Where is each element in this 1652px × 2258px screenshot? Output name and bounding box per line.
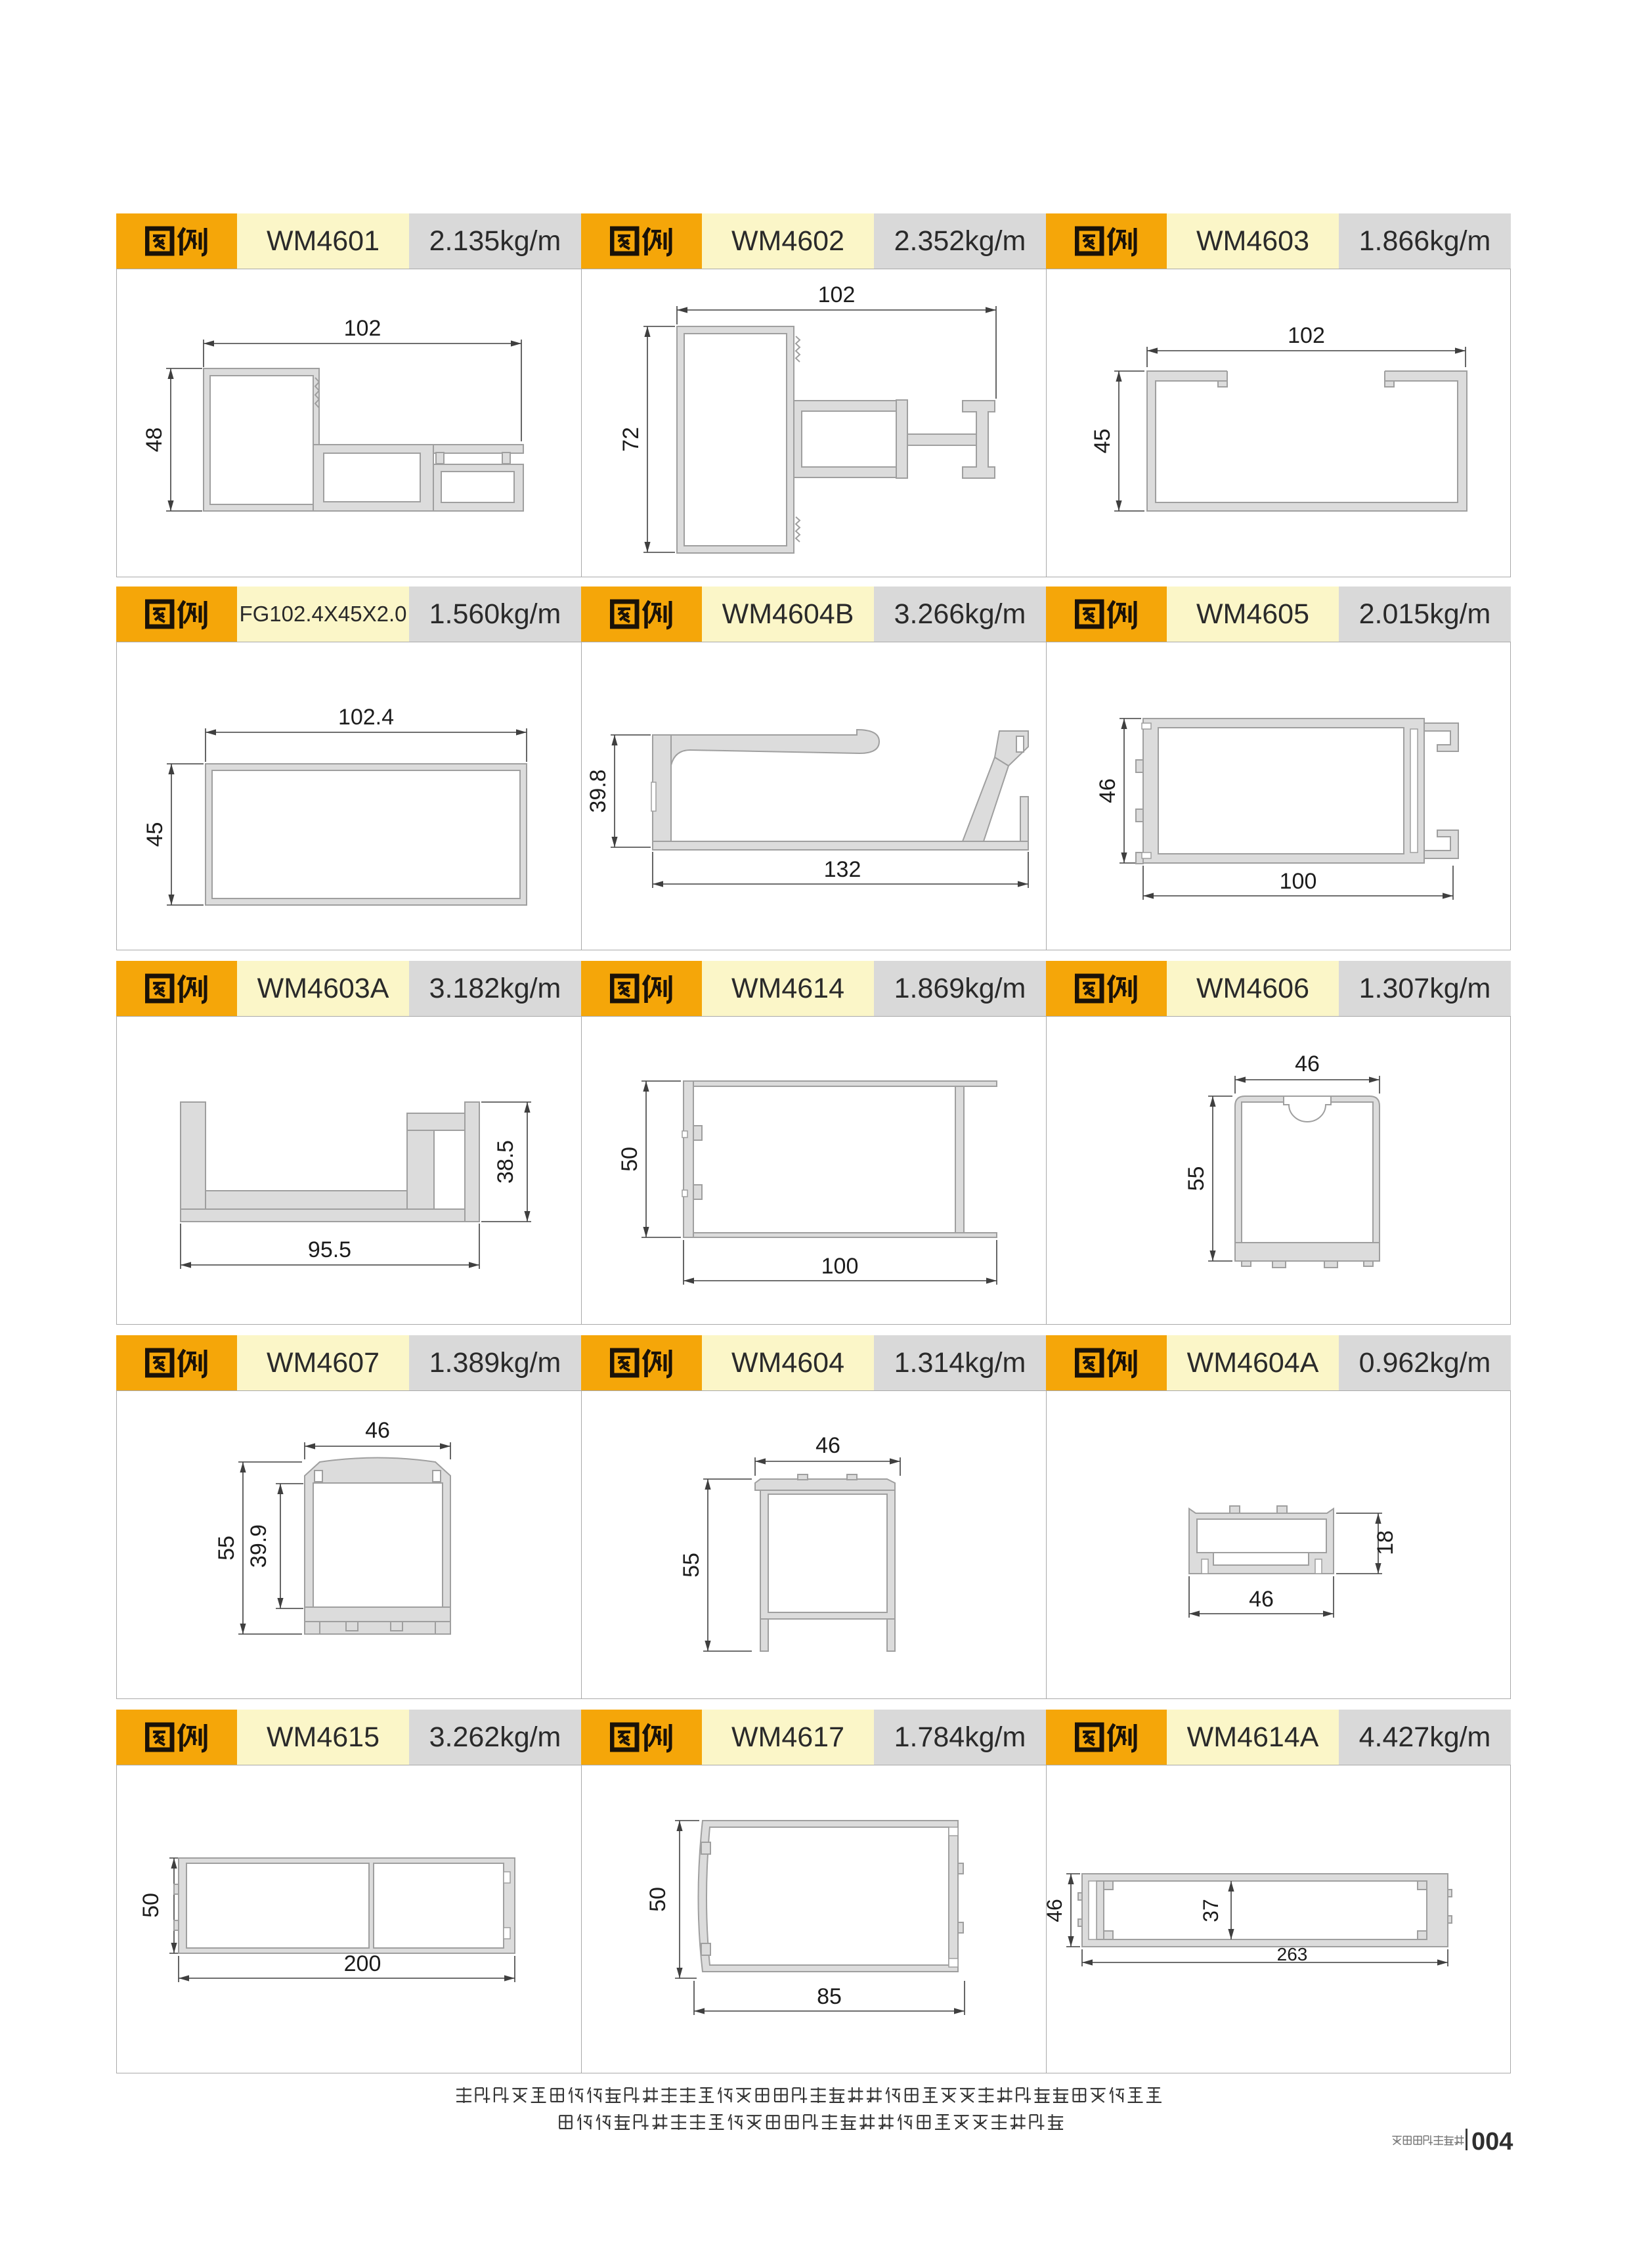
svg-text:18: 18	[1373, 1530, 1398, 1555]
svg-text:48: 48	[142, 428, 167, 453]
svg-text:102: 102	[344, 316, 381, 341]
svg-text:45: 45	[1090, 429, 1115, 454]
svg-text:95.5: 95.5	[308, 1237, 351, 1262]
svg-text:46: 46	[1295, 1052, 1320, 1076]
svg-text:45: 45	[142, 822, 167, 847]
svg-text:50: 50	[645, 1887, 670, 1912]
svg-text:55: 55	[679, 1553, 704, 1578]
svg-text:46: 46	[1095, 778, 1120, 803]
svg-text:46: 46	[1047, 1899, 1066, 1922]
svg-text:102: 102	[1288, 323, 1325, 348]
svg-text:85: 85	[817, 1984, 842, 2009]
svg-text:72: 72	[619, 427, 643, 452]
svg-text:46: 46	[815, 1433, 840, 1458]
svg-text:100: 100	[1280, 869, 1317, 894]
svg-text:50: 50	[617, 1147, 642, 1172]
svg-text:38.5: 38.5	[493, 1140, 518, 1184]
svg-text:37: 37	[1199, 1899, 1223, 1922]
svg-text:39.8: 39.8	[586, 769, 611, 812]
svg-text:55: 55	[1184, 1166, 1209, 1191]
svg-text:46: 46	[365, 1418, 390, 1443]
svg-text:39.9: 39.9	[246, 1524, 271, 1568]
svg-text:132: 132	[824, 857, 861, 882]
svg-text:004: 004	[1471, 2128, 1513, 2156]
svg-text:102.4: 102.4	[338, 705, 394, 730]
svg-text:100: 100	[821, 1254, 859, 1279]
svg-text:102: 102	[818, 282, 856, 307]
svg-text:46: 46	[1249, 1587, 1274, 1612]
svg-text:55: 55	[214, 1536, 239, 1561]
svg-text:200: 200	[344, 1951, 381, 1976]
svg-text:50: 50	[139, 1893, 163, 1918]
